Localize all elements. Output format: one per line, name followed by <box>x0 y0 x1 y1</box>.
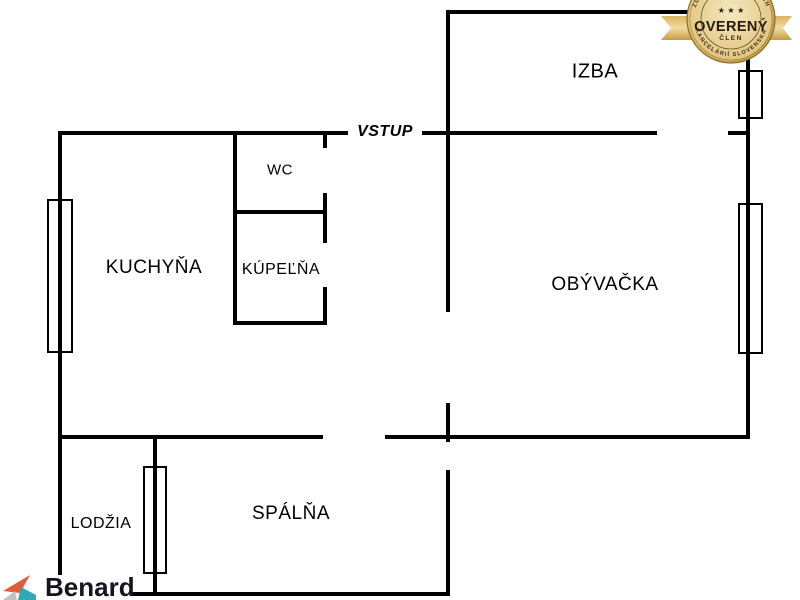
room-label-izba: IZBA <box>572 61 618 84</box>
badge-title: OVERENÝ <box>694 17 768 35</box>
logo-triangle-gray <box>3 591 17 600</box>
room-label-lodzia: LODŽIA <box>71 515 132 533</box>
room-label-spalna: SPÁLŇA <box>252 503 330 525</box>
verified-member-badge: ZDRUŽENIA REALITNÝCH KANCELÁRIÍ SLOVENSK… <box>655 0 800 95</box>
logo-triangle-teal <box>18 587 36 600</box>
badge-member-text: ČLEN <box>719 33 743 42</box>
room-label-kuchyna: KUCHYŇA <box>106 257 202 279</box>
floor-plan-canvas: IZBA VSTUP WC KUCHYŇA KÚPEĽŇA OBÝVAČKA L… <box>0 0 800 600</box>
room-label-wc: WC <box>267 162 293 179</box>
entrance-label-vstup: VSTUP <box>357 123 413 141</box>
room-label-kupelna: KÚPEĽŇA <box>242 261 320 279</box>
agency-logo: Benard <box>0 570 135 600</box>
agency-logo-text: Benard <box>45 574 135 600</box>
badge-stars: ★ ★ ★ <box>718 6 745 15</box>
agency-logo-icon <box>0 570 38 600</box>
window-livingroom <box>739 204 762 353</box>
room-label-obyvacka: OBÝVAČKA <box>551 274 658 296</box>
